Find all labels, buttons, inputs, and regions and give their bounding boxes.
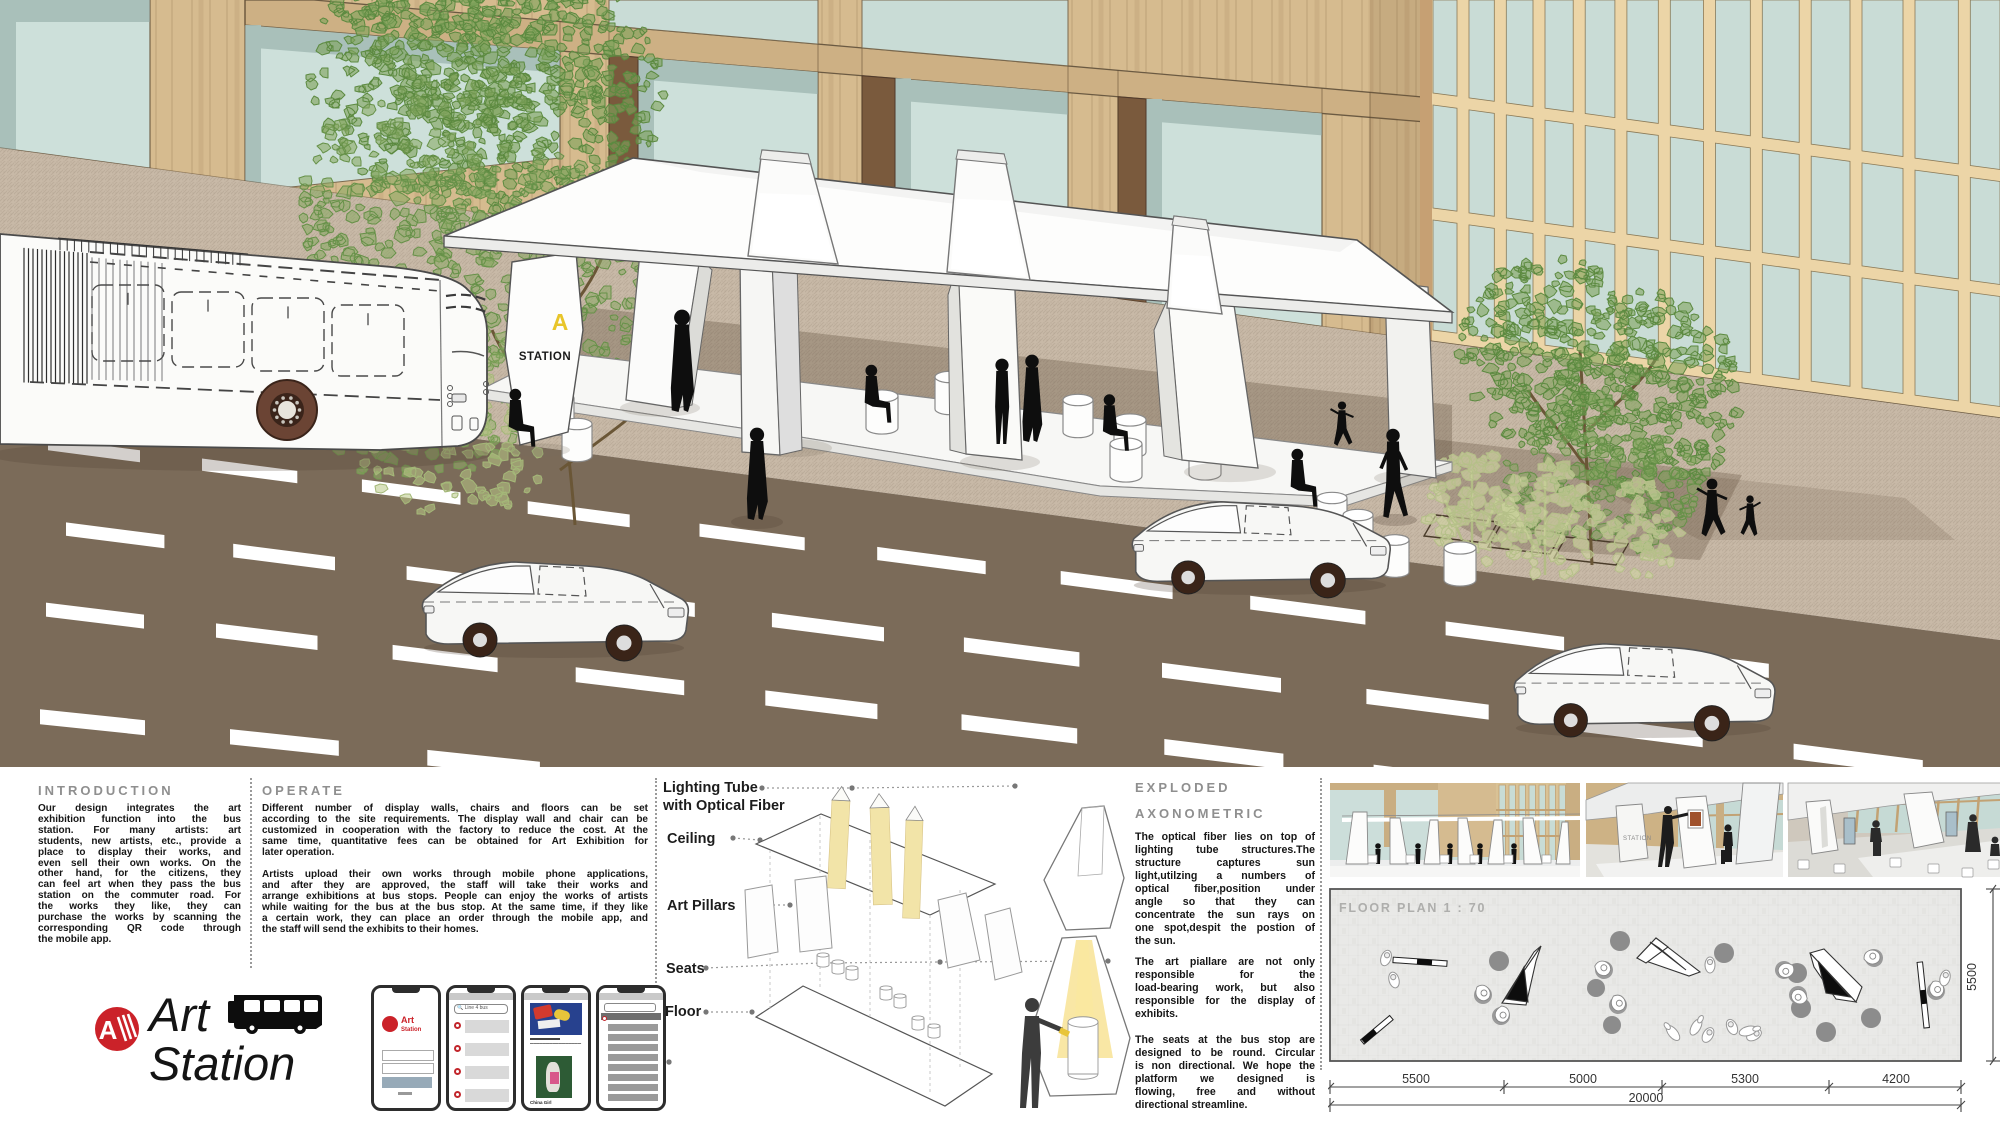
svg-text:20000: 20000 — [1629, 1091, 1664, 1105]
svg-text:Ceiling: Ceiling — [667, 831, 715, 847]
svg-text:STATION: STATION — [1623, 836, 1652, 842]
svg-text:Floor: Floor — [665, 1004, 702, 1020]
svg-text:Art: Art — [146, 988, 211, 1041]
svg-text:Lighting Tube: Lighting Tube — [663, 780, 758, 796]
svg-text:5300: 5300 — [1731, 1072, 1759, 1086]
svg-text:A: A — [99, 1015, 118, 1045]
svg-text:Seats: Seats — [666, 961, 705, 977]
svg-text:STATION: STATION — [519, 351, 571, 363]
svg-text:5000: 5000 — [1569, 1072, 1597, 1086]
svg-text:5500: 5500 — [1965, 963, 1979, 991]
svg-text:Art Pillars: Art Pillars — [667, 898, 736, 914]
svg-text:A: A — [552, 309, 569, 335]
svg-text:5500: 5500 — [1402, 1072, 1430, 1086]
svg-text:Station: Station — [149, 1037, 295, 1090]
svg-text:4200: 4200 — [1882, 1072, 1910, 1086]
svg-text:FLOOR PLAN 1 : 70: FLOOR PLAN 1 : 70 — [1339, 901, 1486, 915]
svg-text:with Optical Fiber: with Optical Fiber — [662, 798, 785, 814]
